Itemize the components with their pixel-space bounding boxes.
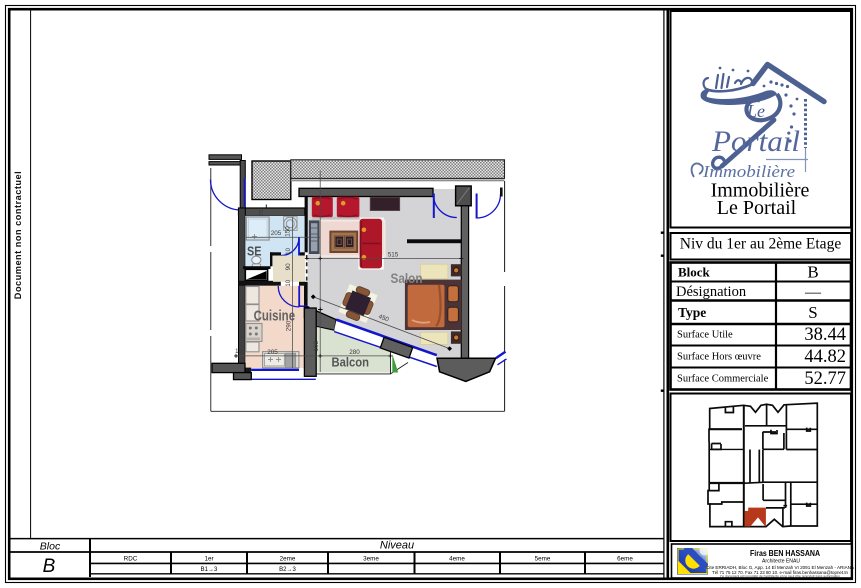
svg-text:150: 150 — [285, 226, 292, 237]
svg-text:44.82: 44.82 — [804, 347, 846, 367]
svg-text:Salon: Salon — [391, 270, 423, 286]
svg-text:280: 280 — [349, 349, 360, 356]
svg-text:Immobilière: Immobilière — [702, 162, 796, 181]
svg-text:Portail: Portail — [711, 125, 800, 158]
svg-text:Type: Type — [678, 305, 706, 320]
svg-text:1er: 1er — [204, 556, 213, 563]
svg-text:RDC: RDC — [124, 556, 138, 563]
svg-text:163: 163 — [313, 341, 320, 352]
svg-text:Bloc: Bloc — [40, 541, 61, 553]
svg-text:4eme: 4eme — [449, 556, 465, 563]
svg-text:Niv du 1er au 2ème Etage: Niv du 1er au 2ème Etage — [680, 236, 842, 253]
svg-text:Balcon: Balcon — [332, 355, 370, 370]
svg-text:290: 290 — [285, 320, 292, 331]
svg-text:Surface Utile: Surface Utile — [677, 330, 733, 341]
svg-text:10: 10 — [286, 279, 292, 286]
svg-text:75: 75 — [259, 210, 265, 216]
svg-text:B1→3: B1→3 — [201, 567, 218, 573]
svg-text:3eme: 3eme — [363, 556, 379, 563]
svg-text:6eme: 6eme — [617, 556, 633, 563]
svg-text:Firas BEN HASSANA: Firas BEN HASSANA — [750, 549, 820, 558]
svg-text:205: 205 — [271, 230, 282, 237]
svg-text:10: 10 — [286, 247, 292, 254]
svg-text:B: B — [807, 263, 818, 282]
svg-text:Surface Commerciale: Surface Commerciale — [677, 374, 769, 385]
svg-text:52.77: 52.77 — [804, 369, 846, 389]
svg-text:—: — — [804, 284, 822, 301]
svg-text:Architecte ENAU: Architecte ENAU — [762, 559, 800, 565]
svg-text:B2→3: B2→3 — [279, 567, 296, 573]
svg-text:SE: SE — [247, 244, 262, 258]
svg-text:90: 90 — [285, 263, 292, 271]
svg-text:Le: Le — [746, 101, 765, 121]
svg-text:2eme: 2eme — [280, 556, 296, 563]
svg-text:Désignation: Désignation — [676, 284, 747, 300]
svg-text:Ce document est propriété de l: Ce document est propriété de l'architect… — [720, 574, 840, 578]
svg-text:Document non contractuel: Document non contractuel — [13, 171, 23, 299]
svg-text:5eme: 5eme — [535, 556, 551, 563]
svg-text:Le Portail: Le Portail — [717, 197, 797, 219]
svg-text:Surface Hors œuvre: Surface Hors œuvre — [677, 352, 761, 363]
svg-text:Block: Block — [678, 265, 711, 280]
svg-text:S: S — [808, 303, 817, 322]
svg-text:205: 205 — [267, 349, 278, 356]
svg-text:Niveau: Niveau — [380, 540, 414, 552]
svg-text:515: 515 — [388, 251, 399, 258]
svg-text:38.44: 38.44 — [804, 325, 846, 345]
svg-text:B: B — [43, 556, 56, 577]
